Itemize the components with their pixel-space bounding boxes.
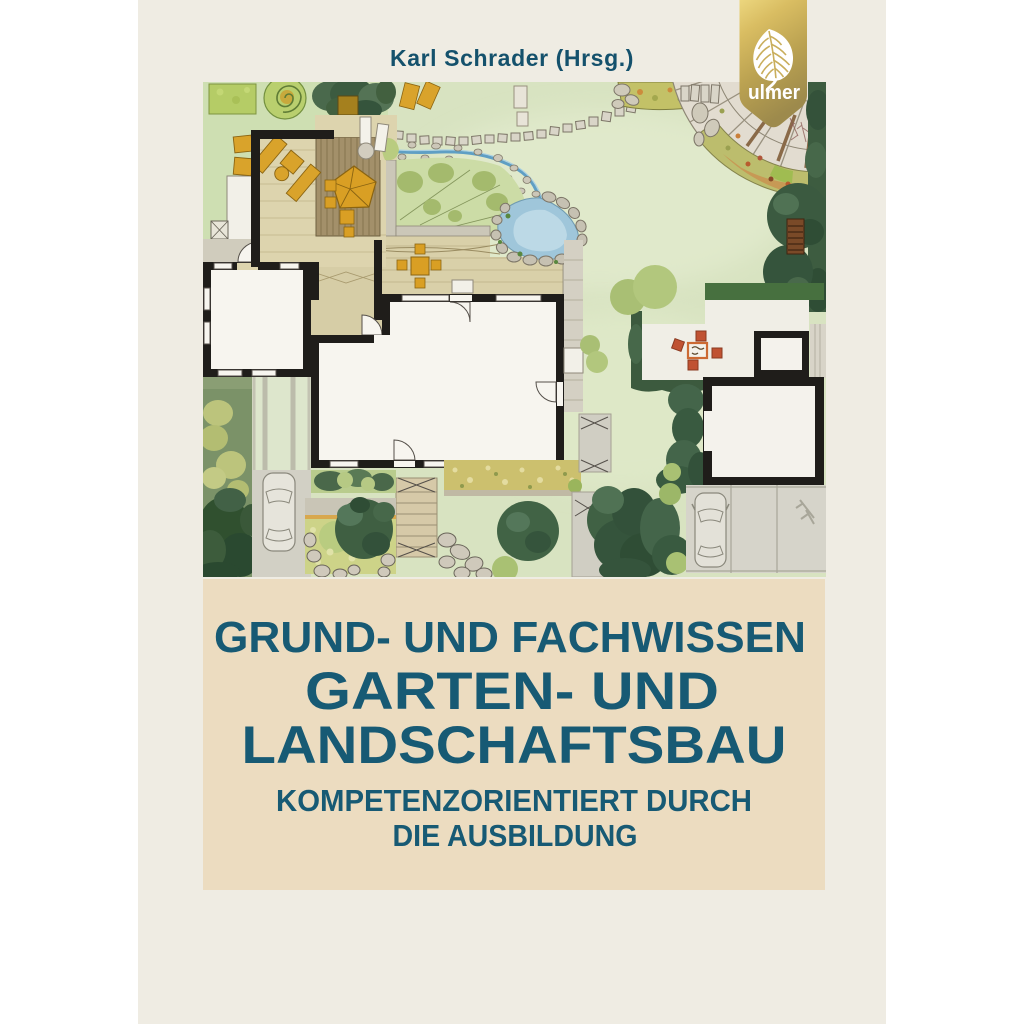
svg-text:Karl Schrader (Hrsg.): Karl Schrader (Hrsg.): [390, 45, 634, 71]
svg-text:KOMPETENZORIENTIERT DURCH: KOMPETENZORIENTIERT DURCH: [276, 783, 752, 818]
svg-text:LANDSCHAFTSBAU: LANDSCHAFTSBAU: [242, 716, 787, 775]
svg-text:ulmer: ulmer: [748, 81, 800, 104]
svg-text:GRUND- UND FACHWISSEN: GRUND- UND FACHWISSEN: [214, 613, 806, 662]
svg-text:GARTEN- UND: GARTEN- UND: [305, 662, 719, 721]
svg-text:DIE AUSBILDUNG: DIE AUSBILDUNG: [393, 818, 638, 853]
